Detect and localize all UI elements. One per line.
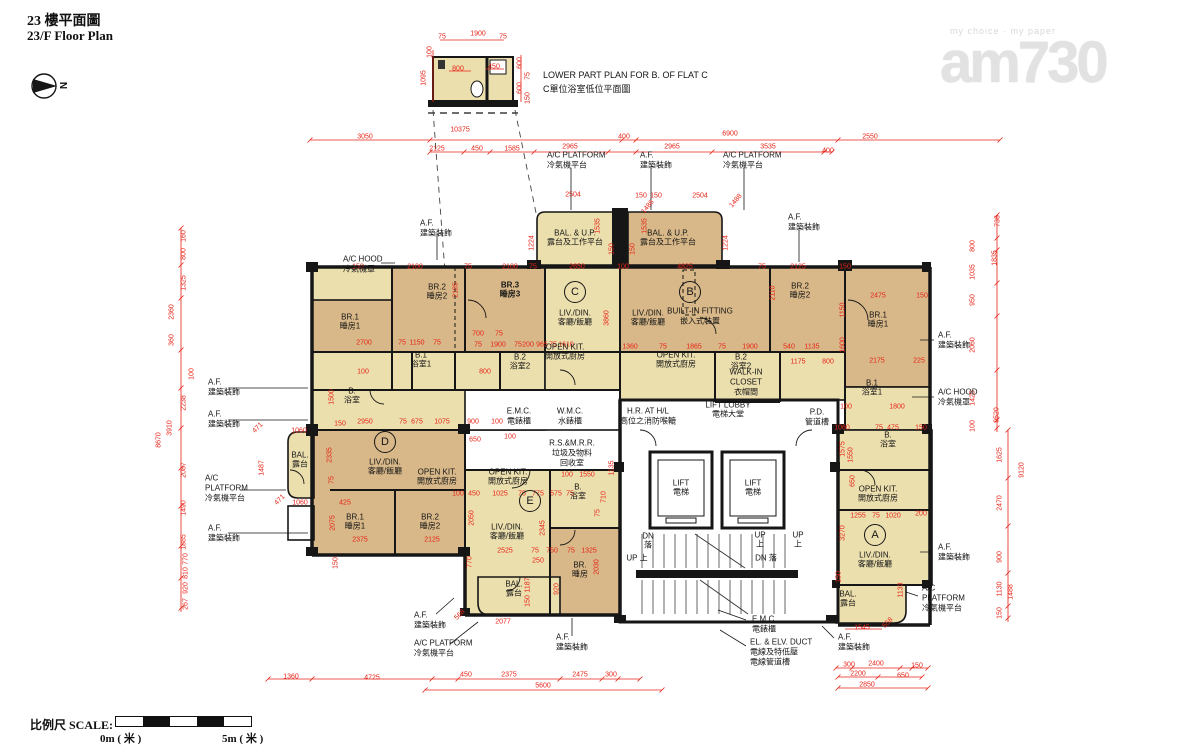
dimension-text: 450 — [460, 672, 472, 679]
dimension-text: 1025 — [492, 491, 508, 498]
annotation-label: BUILT-IN FITTING嵌入式裝置 — [667, 306, 733, 326]
dimension-text: 300 — [843, 662, 855, 669]
dimension-text: 75 — [399, 419, 407, 426]
dimension-text: 2650 — [569, 264, 585, 271]
dimension-text: 471 — [251, 421, 264, 434]
annotation-label: A.F.建築裝飾 — [208, 523, 240, 543]
dimension-text: 75 — [595, 509, 602, 517]
annotation-label: A/C PLATFORM冷氣機平台 — [723, 150, 782, 170]
dimension-text: 75 — [718, 344, 726, 351]
dimension-text: 471 — [273, 493, 286, 506]
dimension-text: 160 — [181, 230, 188, 242]
annotation-label: A.F.建築裝飾 — [938, 542, 970, 562]
flat-d-badge: D — [374, 431, 396, 453]
dimension-text: 150 — [839, 264, 851, 271]
dimension-text: 75 — [474, 342, 482, 349]
dimension-text: 75 — [525, 72, 532, 80]
dimension-text: 2470 — [997, 495, 1004, 511]
room-label: BR.1睡房1 — [340, 313, 360, 332]
dimension-text: 2087 — [181, 462, 188, 478]
annotation-label: A/C HOOD冷氣機罩 — [938, 387, 978, 407]
annotation-label: H.R. AT H/L高位之消防喉轆 — [620, 406, 676, 426]
flat-a-badge: A — [864, 524, 886, 546]
annotation-label: A/CPLATFORM冷氣機平台 — [922, 583, 965, 612]
dimension-text: 2075 — [330, 515, 337, 531]
annotation-label: A.F.建築裝飾 — [938, 330, 970, 350]
dimension-text: 267 — [183, 598, 190, 610]
dimension-text: 568 — [453, 608, 466, 621]
dimension-text: 1575 — [840, 441, 847, 457]
dimension-text: 2060 — [970, 337, 977, 353]
dimension-text: 2400 — [868, 661, 884, 668]
room-label: BAL. & U.P.露台及工作平台 — [640, 229, 696, 248]
room-label: LIFT電梯 — [745, 479, 761, 498]
dimension-text: 2475 — [572, 672, 588, 679]
dimension-text: 150 — [916, 293, 928, 300]
dimension-text: 1060 — [292, 500, 308, 507]
dimension-text: 75 — [433, 340, 441, 347]
dimension-text: 2100 — [407, 264, 423, 271]
dimension-text: 1500 — [329, 389, 336, 405]
dimension-text: 1865 — [686, 344, 702, 351]
flat-e-badge: E — [519, 490, 541, 512]
room-label: B.2浴室2 — [510, 353, 530, 372]
dimension-text: 400 — [822, 148, 834, 155]
dimension-text: 2100 — [502, 264, 518, 271]
dimension-text: 1900 — [742, 344, 758, 351]
dimension-text: 100 — [617, 264, 629, 271]
scale-segment — [143, 717, 170, 726]
dimension-text: 9120 — [1019, 462, 1026, 478]
dimension-text: 1600 — [840, 337, 847, 353]
dimension-text: 800 — [181, 248, 188, 260]
room-label: UP上 — [792, 531, 803, 550]
room-label: LIV./DIN.客廳/飯廳 — [558, 309, 592, 328]
dimension-text: 770 — [183, 553, 190, 565]
room-label: LIV./DIN.客廳/飯廳 — [368, 458, 402, 477]
dimension-text: 100 — [427, 46, 434, 58]
dimension-text: 1187 — [525, 577, 532, 592]
scale-segment — [197, 717, 224, 726]
dimension-text: 2125 — [429, 146, 445, 153]
dimension-text: 100 — [840, 404, 852, 411]
dimension-text: 200 — [522, 342, 534, 349]
dimension-text: 75 — [398, 340, 406, 347]
dimension-text: 1325 — [181, 275, 188, 291]
dimension-text: 1075 — [434, 419, 450, 426]
dimension-text: 2475 — [870, 293, 886, 300]
dimension-text: 450 — [468, 491, 480, 498]
dimension-text: 920 — [554, 583, 561, 595]
dimension-text: 3860 — [604, 310, 611, 326]
dimension-text: 6900 — [722, 131, 738, 138]
annotation-label: A.F.建築裝飾 — [208, 377, 240, 397]
dimension-text: 1150 — [409, 340, 424, 347]
dimension-text: 2504 — [692, 193, 708, 200]
dimension-text: 2050 — [469, 510, 476, 526]
dimension-text: 360 — [169, 334, 176, 346]
dimension-text: 1900 — [490, 342, 506, 349]
dimension-text: 100 — [452, 491, 464, 498]
dimension-text: 225 — [913, 358, 925, 365]
room-label: B.浴室 — [880, 431, 896, 450]
dimension-text: 1885 — [181, 534, 188, 550]
room-label: B.1浴室1 — [862, 379, 882, 398]
dimension-text: 450 — [471, 146, 483, 153]
dimension-text: 2335 — [327, 447, 334, 463]
room-label: BAL.露台 — [291, 451, 308, 470]
dimension-text: 75 — [529, 264, 537, 271]
dimension-text: 900 — [467, 419, 479, 426]
dimension-text: 2550 — [862, 134, 878, 141]
room-label: BR.3睡房3 — [500, 281, 520, 300]
dimension-text: 1130 — [997, 581, 1004, 596]
dimension-text: 75 — [329, 476, 336, 484]
inset-title-en: LOWER PART PLAN FOR B. OF FLAT C — [543, 68, 708, 82]
room-label: BAL.露台 — [505, 580, 522, 599]
dimension-text: 700 — [472, 331, 484, 338]
dimension-text: 100 — [970, 420, 977, 432]
dimension-text: 1060 — [834, 425, 850, 432]
annotation-label: E.M.C.電錶櫃 — [507, 406, 531, 426]
dimension-text: 4725 — [364, 675, 380, 682]
dimension-text: 150 — [525, 595, 532, 607]
scale-five-label: 5m ( 米 ) — [222, 730, 263, 746]
room-label: UP 上 — [626, 553, 647, 562]
dimension-text: 1360 — [622, 344, 638, 351]
scale-segment — [170, 717, 197, 726]
dimension-text: 2077 — [495, 619, 511, 626]
dimension-text: 1133 — [898, 582, 905, 597]
dimension-text: 800 — [452, 66, 464, 73]
dimension-text: 100 — [189, 368, 196, 380]
dimension-text: 1487 — [259, 460, 266, 476]
dimension-text: 4825 — [677, 264, 693, 271]
dimension-text: 150 — [915, 425, 927, 432]
dimension-text: 100 — [357, 369, 369, 376]
scale-bar — [115, 716, 252, 727]
room-label: LIFT LOBBY電梯大堂 — [705, 401, 750, 420]
dimension-text: 8670 — [156, 432, 163, 448]
dimension-text: 1550 — [848, 447, 855, 463]
room-label: OPEN KIT.開放式廚房 — [656, 351, 696, 370]
dimension-text: 1020 — [885, 513, 901, 520]
dimension-text: 150 — [609, 243, 616, 255]
annotation-label: W.M.C.水錶櫃 — [557, 406, 583, 426]
dimension-text: 900 — [997, 551, 1004, 563]
dimension-text: 650 — [469, 437, 481, 444]
dimension-text: 2504 — [565, 192, 581, 199]
room-label: BR.2睡房2 — [420, 513, 440, 532]
room-label: BR.睡房 — [572, 561, 588, 580]
annotation-label: A.F.建築裝飾 — [640, 150, 672, 170]
north-label: N — [57, 82, 68, 89]
dimension-text: 810 — [183, 567, 190, 579]
dimension-text: 800 — [970, 240, 977, 252]
annotation-label: WALK-INCLOSET衣帽間 — [729, 367, 762, 396]
room-label: OPEN KIT.開放式廚房 — [858, 485, 898, 504]
dimension-text: 450 — [488, 64, 500, 71]
scale-segment — [224, 717, 251, 726]
dimension-text: 558 — [881, 616, 894, 629]
dimension-text: 150 — [997, 607, 1004, 619]
dimension-text: 1255 — [850, 513, 866, 520]
inset-plan-title: LOWER PART PLAN FOR B. OF FLAT C C單位浴室低位… — [543, 68, 708, 97]
floor-plan-page: 3050103754006900255021254501585296529653… — [0, 0, 1181, 753]
dimension-text: 675 — [411, 419, 423, 426]
annotation-label: A.F.建築裝飾 — [788, 212, 820, 232]
page-title-zh: 23 樓平面圖 — [27, 10, 101, 30]
room-label: BR.2睡房2 — [427, 283, 447, 302]
dimension-text: 1545 — [854, 625, 870, 632]
dimension-text: 9520 — [994, 407, 1001, 423]
dimension-text: 150 — [836, 571, 843, 583]
dimension-text: 250 — [532, 558, 544, 565]
dimension-text: 2200 — [850, 671, 866, 678]
dimension-text: 75 — [499, 34, 507, 41]
annotation-label: A.F.建築裝飾 — [838, 632, 870, 652]
dimension-text: 1488 — [728, 193, 743, 209]
room-label: B.1浴室1 — [411, 351, 431, 370]
dimension-text: 425 — [339, 500, 351, 507]
flat-c-badge: C — [564, 281, 586, 303]
room-label: B.浴室 — [570, 483, 586, 502]
dimension-text: 710 — [601, 491, 608, 503]
dimension-text: 1135 — [609, 460, 616, 475]
dimension-text: 150 — [525, 92, 532, 104]
dimension-text: 1360 — [283, 674, 299, 681]
room-label: OPEN KIT.開放式廚房 — [417, 468, 457, 487]
dimension-text: 1585 — [504, 146, 520, 153]
dimension-text: 75 — [758, 264, 766, 271]
scale-zero-label: 0m ( 米 ) — [100, 730, 141, 746]
room-label: LIV./DIN.客廳/飯廳 — [631, 309, 665, 328]
dimension-text: 5600 — [535, 683, 551, 690]
label-layer: 3050103754006900255021254501585296529653… — [0, 0, 1181, 753]
dimension-text: 10375 — [450, 127, 469, 134]
watermark: my choice · my paper am730 — [940, 26, 1106, 89]
dimension-text: 1060 — [291, 428, 307, 435]
annotation-label: A/CPLATFORM冷氣機平台 — [205, 473, 248, 502]
room-label: BAL.露台 — [839, 590, 856, 609]
dimension-text: 75 — [567, 548, 575, 555]
dimension-text: 1900 — [470, 31, 486, 38]
dimension-text: 800 — [479, 369, 491, 376]
room-label: BR.1睡房1 — [345, 513, 365, 532]
dimension-text: 100 — [491, 419, 503, 426]
dimension-text: 2700 — [356, 340, 372, 347]
page-title-en: 23/F Floor Plan — [27, 28, 113, 44]
dimension-text: 1150 — [840, 302, 847, 317]
dimension-text: 1800 — [889, 404, 905, 411]
dimension-text: 1175 — [790, 359, 805, 366]
dimension-text: 1490 — [181, 500, 188, 516]
dimension-text: 1224 — [723, 235, 730, 251]
dimension-text: 770 — [467, 556, 474, 568]
annotation-label: A/C PLATFORM冷氣機平台 — [547, 150, 606, 170]
annotation-label: E.M.C.電錶櫃 — [752, 614, 776, 634]
scale-segment — [116, 717, 143, 726]
room-label: DN落 — [642, 532, 654, 551]
dimension-text: 2345 — [540, 520, 547, 536]
dimension-text: 540 — [783, 344, 795, 351]
room-label: UP上 — [754, 531, 765, 550]
dimension-text: 75 — [514, 342, 522, 349]
dimension-text: 150 — [635, 193, 647, 200]
dimension-text: 150 — [334, 421, 346, 428]
annotation-label: A/C PLATFORM冷氣機平台 — [414, 638, 473, 658]
dimension-text: 200 — [915, 511, 927, 518]
dimension-text: 1835 — [992, 250, 999, 266]
dimension-text: 75 — [659, 344, 667, 351]
dimension-text: 3050 — [357, 134, 373, 141]
dimension-text: 920 — [183, 582, 190, 594]
dimension-text: 2238 — [181, 395, 188, 411]
room-label: OPEN KIT.開放式廚房 — [545, 343, 585, 362]
room-label: LIV./DIN.客廳/飯廳 — [858, 551, 892, 570]
dimension-text: 2030 — [594, 559, 601, 575]
dimension-text: 1625 — [997, 447, 1004, 463]
dimension-text: 575 — [550, 491, 562, 498]
flat-b-badge: B — [679, 281, 701, 303]
dimension-text: 1325 — [581, 548, 597, 555]
dimension-text: 300 — [605, 672, 617, 679]
dimension-text: 75 — [464, 264, 472, 271]
dimension-text: 2185 — [453, 282, 460, 298]
room-label: BR.1睡房1 — [868, 311, 888, 330]
dimension-text: 400 — [618, 134, 630, 141]
dimension-text: 100 — [561, 472, 573, 479]
dimension-text: 150 — [333, 557, 340, 569]
room-label: LIV./DIN.客廳/飯廳 — [490, 523, 524, 542]
annotation-label: A.F.建築裝飾 — [208, 409, 240, 429]
dimension-text: 2175 — [869, 358, 885, 365]
dimension-text: 150 — [630, 243, 637, 255]
dimension-text: 2375 — [352, 537, 368, 544]
room-label: LIFT電梯 — [673, 479, 689, 498]
dimension-text: 750 — [546, 548, 558, 555]
inset-title-zh: C單位浴室低位平面圖 — [543, 82, 708, 96]
annotation-label: A.F.建築裝飾 — [556, 632, 588, 652]
dimension-text: 75 — [531, 548, 539, 555]
annotation-label: A.F.建築裝飾 — [414, 610, 446, 630]
room-label: DN 落 — [755, 553, 777, 562]
dimension-text: 1095 — [421, 70, 428, 86]
dimension-text: 100 — [504, 434, 516, 441]
dimension-text: 1550 — [579, 472, 595, 479]
dimension-text: 950 — [970, 294, 977, 306]
dimension-text: 2125 — [790, 264, 806, 271]
dimension-text: 3910 — [167, 420, 174, 436]
dimension-text: 3270 — [840, 525, 847, 541]
dimension-text: 1135 — [804, 344, 819, 351]
annotation-label: P.D.管道槽 — [805, 407, 829, 427]
dimension-text: 75 — [495, 331, 503, 338]
dimension-text: 650 — [850, 475, 857, 487]
dimension-text: 1488 — [640, 199, 655, 215]
dimension-text: 1224 — [529, 235, 536, 251]
annotation-label: A/C HOOD冷氣機罩 — [343, 254, 383, 274]
room-label: BR.2睡房2 — [790, 282, 810, 301]
dimension-text: 150 — [650, 193, 662, 200]
watermark-logo: am730 — [940, 36, 1106, 89]
dimension-text: 2125 — [424, 537, 440, 544]
dimension-text: 2850 — [859, 682, 875, 689]
dimension-text: 75 — [872, 513, 880, 520]
dimension-text: 600 — [517, 57, 524, 69]
dimension-text: 2110 — [770, 285, 777, 300]
annotation-label: R.S.&M.R.R.垃圾及物料回收室 — [549, 438, 595, 467]
dimension-text: 800 — [822, 359, 834, 366]
room-label: B.浴室 — [344, 387, 360, 406]
dimension-text: 2375 — [501, 672, 517, 679]
dimension-text: 600 — [517, 82, 524, 94]
annotation-label: EL. & ELV. DUCT電線及特低壓電線管道槽 — [750, 637, 812, 666]
dimension-text: 2950 — [357, 419, 373, 426]
dimension-text: 150 — [911, 663, 923, 670]
annotation-label: A.F.建築裝飾 — [420, 218, 452, 238]
dimension-text: 2525 — [497, 548, 513, 555]
room-label: BAL. & U.P.露台及工作平台 — [547, 229, 603, 248]
dimension-text: 735 — [995, 215, 1002, 227]
dimension-text: 1488 — [1008, 584, 1015, 600]
dimension-text: 2360 — [169, 304, 176, 320]
room-label: OPEN KIT.開放式廚房 — [488, 468, 528, 487]
dimension-text: 75 — [438, 34, 446, 41]
dimension-text: 1035 — [970, 264, 977, 280]
dimension-text: 650 — [897, 673, 909, 680]
